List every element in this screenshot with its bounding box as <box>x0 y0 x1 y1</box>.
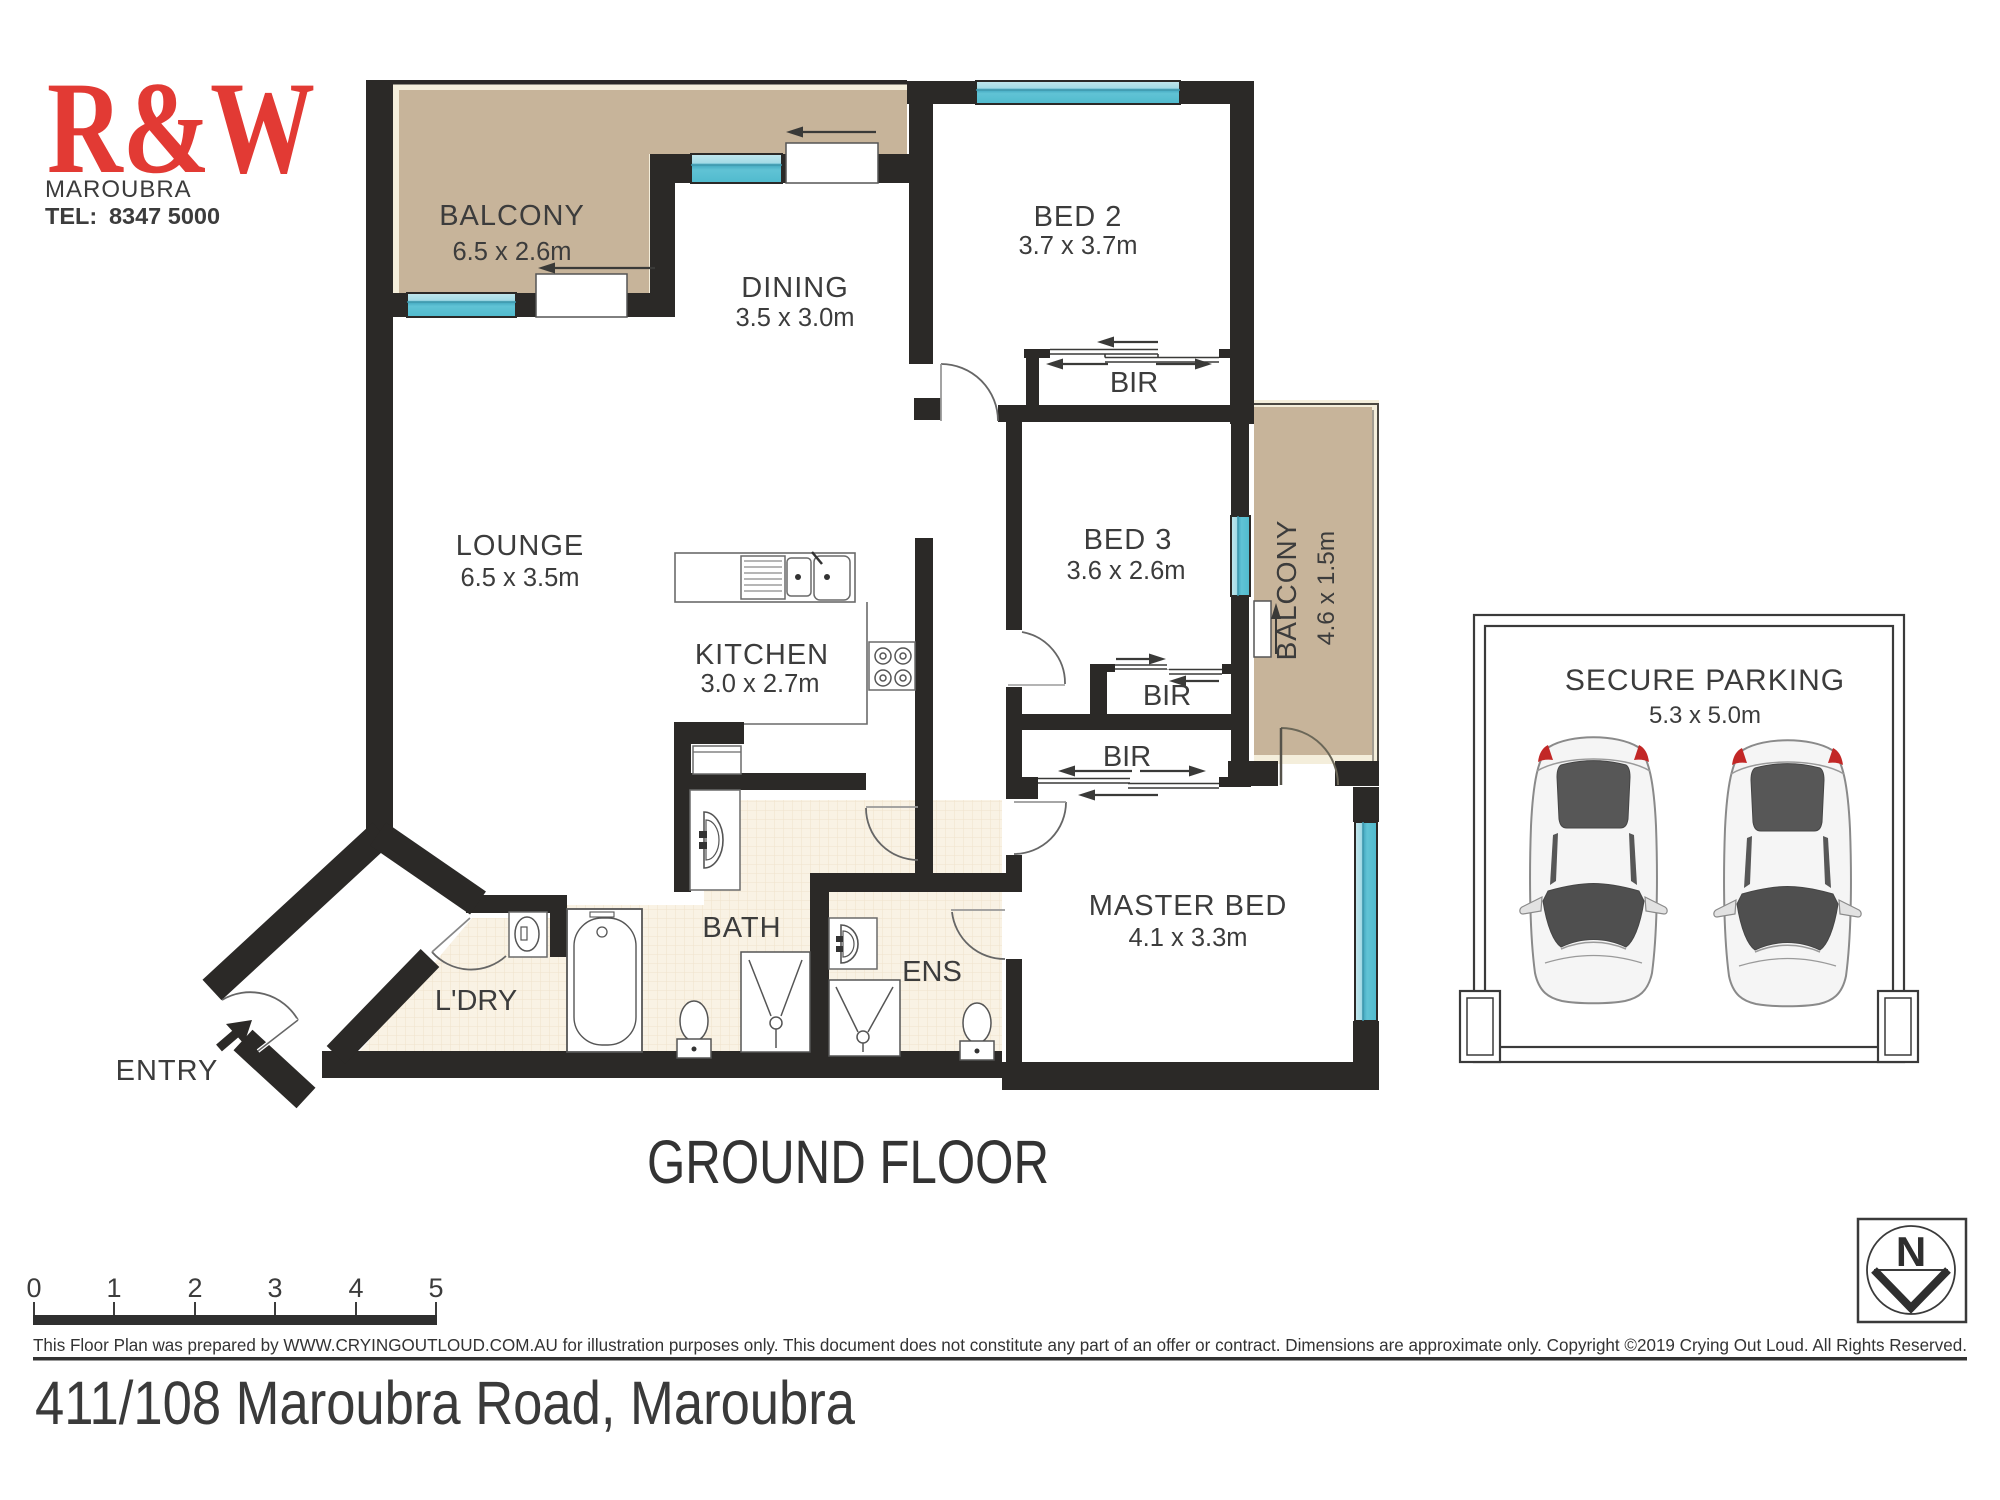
svg-text:4: 4 <box>348 1273 363 1303</box>
svg-text:6.5 x 2.6m: 6.5 x 2.6m <box>452 238 571 266</box>
svg-text:MASTER BED: MASTER BED <box>1089 890 1288 922</box>
svg-text:1: 1 <box>106 1273 121 1303</box>
svg-text:SECURE PARKING: SECURE PARKING <box>1565 664 1845 697</box>
svg-text:4.1 x 3.3m: 4.1 x 3.3m <box>1128 924 1247 952</box>
svg-text:411/108 Maroubra Road, Maroubr: 411/108 Maroubra Road, Maroubra <box>35 1369 855 1437</box>
svg-text:3.6 x 2.6m: 3.6 x 2.6m <box>1066 557 1185 585</box>
svg-text:5: 5 <box>428 1273 443 1303</box>
svg-text:GROUND FLOOR: GROUND FLOOR <box>647 1128 1049 1196</box>
svg-text:BED 2: BED 2 <box>1034 201 1123 233</box>
svg-text:BIR: BIR <box>1103 741 1151 773</box>
svg-text:TEL: 8347 5000: TEL: 8347 5000 <box>45 203 220 229</box>
svg-text:ENS: ENS <box>902 956 962 988</box>
svg-text:LOUNGE: LOUNGE <box>456 530 584 562</box>
svg-text:KITCHEN: KITCHEN <box>695 639 829 671</box>
svg-text:MAROUBRA: MAROUBRA <box>45 176 192 203</box>
svg-text:3.7 x 3.7m: 3.7 x 3.7m <box>1018 232 1137 260</box>
svg-text:2: 2 <box>187 1273 202 1303</box>
svg-text:4.6 x 1.5m: 4.6 x 1.5m <box>1313 531 1340 645</box>
svg-text:This Floor Plan was prepared b: This Floor Plan was prepared by WWW.CRYI… <box>33 1335 1967 1355</box>
svg-text:3.0 x 2.7m: 3.0 x 2.7m <box>700 670 819 698</box>
svg-text:N: N <box>1896 1228 1926 1275</box>
svg-text:BED 3: BED 3 <box>1084 524 1173 556</box>
svg-text:BATH: BATH <box>702 912 781 944</box>
svg-text:5.3 x 5.0m: 5.3 x 5.0m <box>1649 702 1761 729</box>
svg-text:6.5 x 3.5m: 6.5 x 3.5m <box>460 564 579 592</box>
svg-text:BIR: BIR <box>1143 680 1191 712</box>
svg-text:BIR: BIR <box>1110 367 1158 399</box>
svg-text:0: 0 <box>26 1273 41 1303</box>
svg-text:ENTRY: ENTRY <box>116 1055 219 1087</box>
svg-text:3: 3 <box>267 1273 282 1303</box>
svg-text:DINING: DINING <box>741 272 849 304</box>
svg-text:3.5 x 3.0m: 3.5 x 3.0m <box>735 304 854 332</box>
svg-text:BALCONY: BALCONY <box>439 200 585 232</box>
svg-text:L'DRY: L'DRY <box>435 985 517 1017</box>
